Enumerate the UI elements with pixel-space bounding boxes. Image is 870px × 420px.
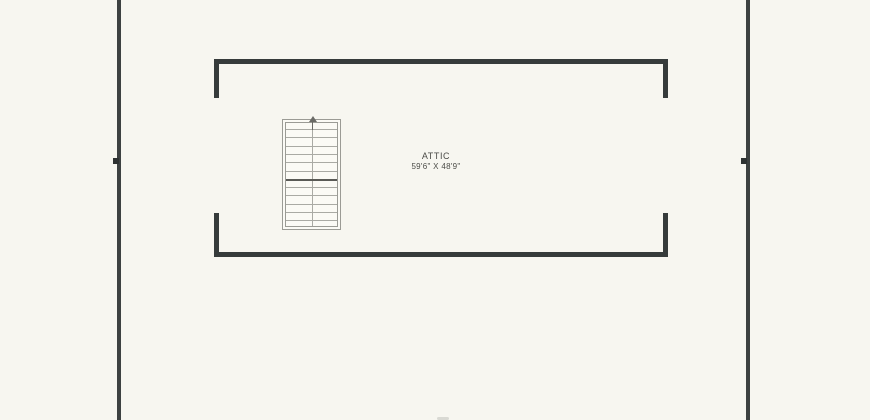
stair-tread: [286, 195, 337, 196]
wall-marker-right: [741, 158, 747, 164]
up-arrow-icon: [309, 116, 317, 122]
stair-tread: [286, 154, 337, 155]
attic-wall-left-upper: [214, 59, 219, 98]
attic-wall-right-upper: [663, 59, 668, 98]
room-name: ATTIC: [374, 151, 498, 161]
stair-tread: [286, 204, 337, 205]
room-label: ATTIC 59'6" X 48'9": [374, 151, 498, 172]
room-dimensions: 59'6" X 48'9": [374, 162, 498, 172]
staircase-stringer: [285, 122, 338, 227]
stair-landing-line: [286, 179, 337, 181]
stair-tread: [286, 162, 337, 163]
stair-direction-arrow-stem: [312, 121, 313, 130]
attic-wall-left-lower: [214, 213, 219, 257]
stair-tread: [286, 220, 337, 221]
stair-tread: [286, 187, 337, 188]
stair-tread: [286, 212, 337, 213]
staircase-center-line: [312, 123, 313, 226]
exterior-wall-right: [746, 0, 750, 420]
stair-tread: [286, 171, 337, 172]
attic-floor-plan: ATTIC 59'6" X 48'9": [0, 0, 870, 420]
exterior-wall-left: [117, 0, 121, 420]
wall-marker-left: [113, 158, 119, 164]
attic-wall-top: [214, 59, 668, 64]
stair-tread: [286, 146, 337, 147]
attic-wall-bottom: [214, 252, 668, 257]
attic-wall-right-lower: [663, 213, 668, 257]
stair-tread: [286, 137, 337, 138]
staircase: [282, 119, 341, 230]
